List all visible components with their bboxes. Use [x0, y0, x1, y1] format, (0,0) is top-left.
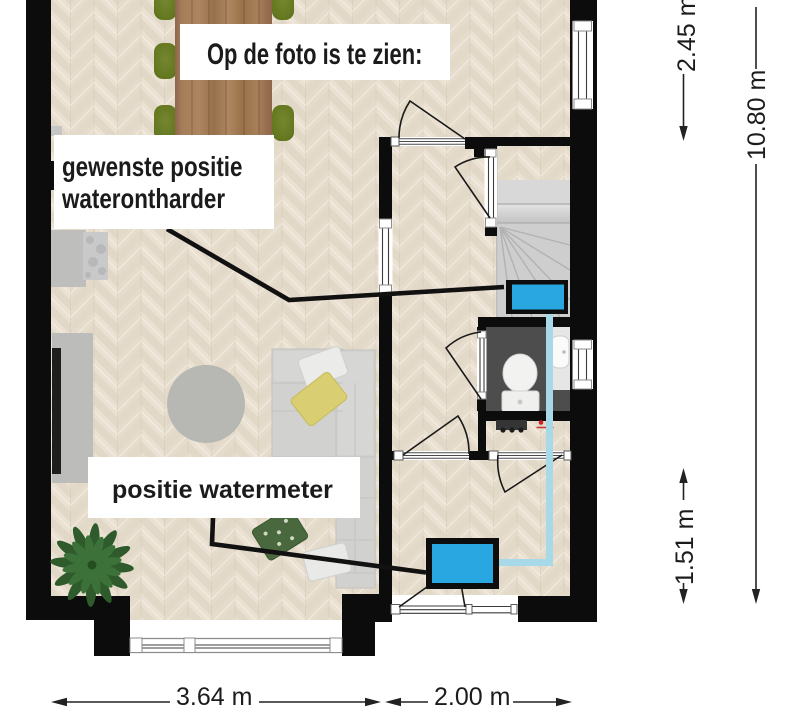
svg-text:3.64 m: 3.64 m	[176, 683, 252, 711]
svg-text:2.00 m: 2.00 m	[434, 683, 510, 711]
svg-text:2.45 m: 2.45 m	[673, 0, 701, 72]
svg-text:10.80 m: 10.80 m	[743, 70, 771, 160]
svg-text:1.51 m: 1.51 m	[671, 509, 699, 585]
